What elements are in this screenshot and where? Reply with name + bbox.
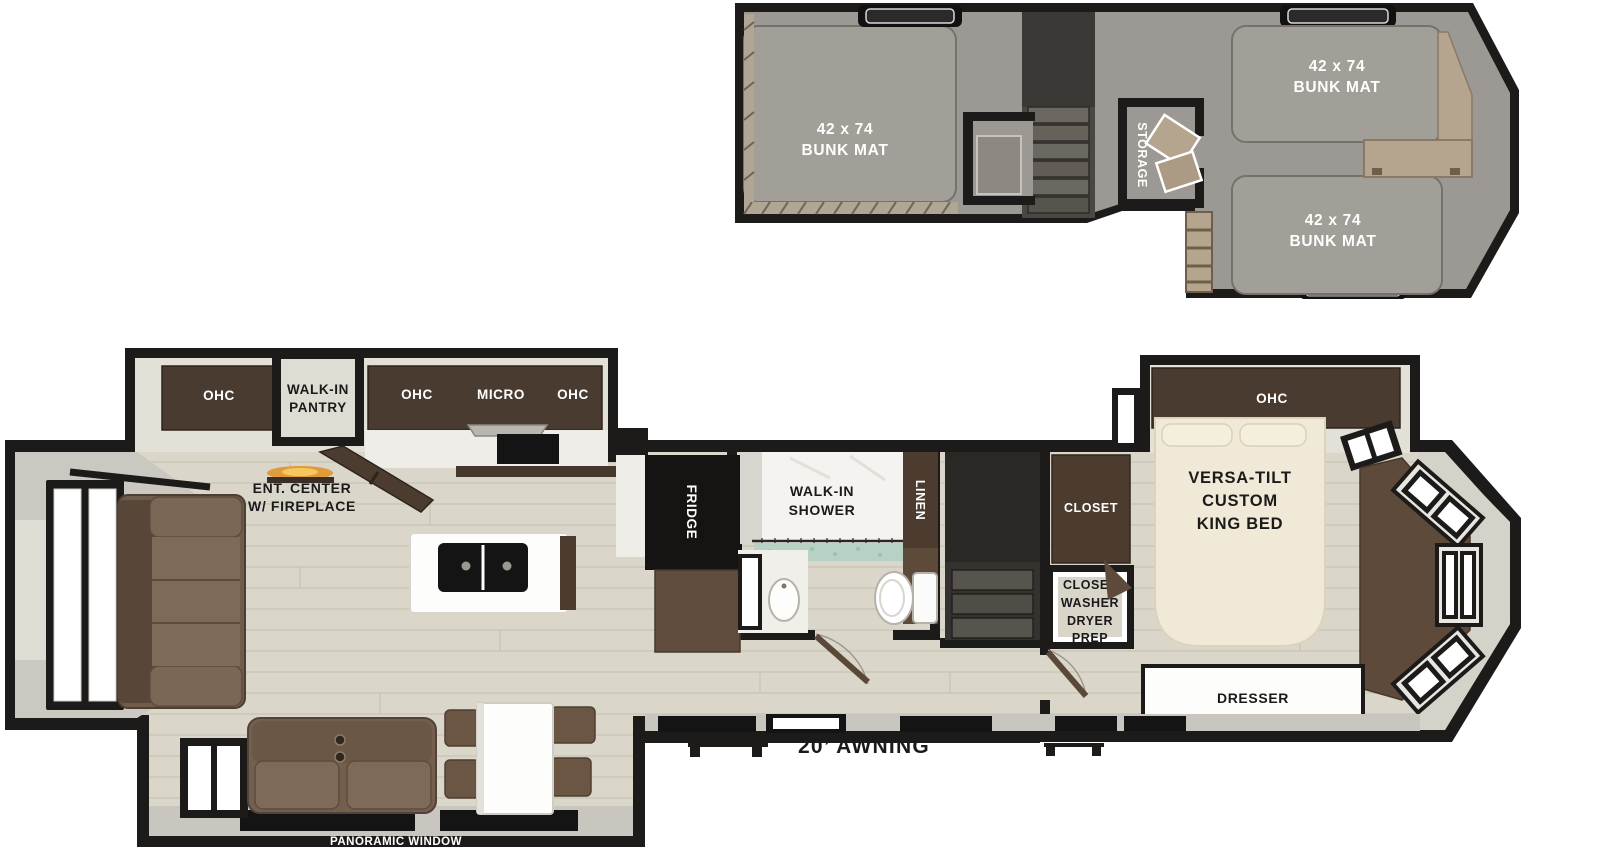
- roof-skylight-left-icon: [858, 5, 962, 27]
- roof-skylight-right-icon: [1280, 5, 1396, 27]
- pantry-label-line1: WALK-IN: [287, 382, 349, 397]
- pillow-icon: [1240, 424, 1306, 446]
- walk-in-pantry: WALK-IN PANTRY: [272, 350, 364, 446]
- bottom-window-icon: [658, 716, 756, 732]
- kitchen-micro-label: MICRO: [477, 387, 525, 402]
- king-bed: VERSA-TILT CUSTOM KING BED: [1155, 418, 1325, 646]
- fridge-label: FRIDGE: [684, 485, 699, 540]
- wd-label-line3: DRYER: [1067, 614, 1113, 628]
- panoramic-window-label: PANORAMIC WINDOW: [330, 836, 462, 848]
- bed-slide-left-window-icon: [1112, 388, 1140, 450]
- bathroom-vanity: [738, 550, 808, 633]
- loft-left-edge-hatch: [744, 14, 754, 202]
- loft-bunk-ladder-icon: [1186, 212, 1212, 292]
- bedroom-bottom-window-icon: [1055, 716, 1117, 731]
- dinette-table: [477, 703, 553, 814]
- storage-label: STORAGE: [1135, 122, 1149, 188]
- bottom-right-bunk-name-label: BUNK MAT: [1289, 233, 1376, 250]
- loft-floorplan: STORAGE 42 x 74 BUNK MAT 42 x 74 BUNK MA…: [735, 3, 1519, 299]
- loft-half-wall: [963, 112, 1035, 205]
- counter-right: [616, 455, 646, 557]
- rear-window-icon: [46, 480, 124, 710]
- dinette-chair: [445, 760, 479, 798]
- cooktop-icon: [497, 434, 559, 464]
- left-bunk-name-label: BUNK MAT: [801, 142, 888, 159]
- dinette-chair: [445, 710, 479, 746]
- loft-nightstand: [1364, 140, 1472, 177]
- kitchen-ohc-right-label: OHC: [557, 387, 589, 402]
- closet-label: CLOSET: [1064, 501, 1118, 515]
- cabinet-below-fridge: [655, 570, 740, 652]
- entry-steps-icon: [688, 743, 768, 757]
- toilet-icon: [875, 572, 937, 624]
- ent-center-label-line2: W/ FIREPLACE: [248, 498, 356, 514]
- bed-label-line2: CUSTOM: [1202, 492, 1278, 510]
- bedroom-ohc-label: OHC: [1256, 391, 1288, 406]
- floorplan-canvas: STORAGE 42 x 74 BUNK MAT 42 x 74 BUNK MA…: [0, 0, 1600, 849]
- bed-label-line1: VERSA-TILT: [1188, 469, 1291, 487]
- dresser-label: DRESSER: [1217, 690, 1289, 706]
- kitchen-island: [410, 533, 576, 613]
- sofa: [118, 495, 245, 708]
- top-right-bunk-name-label: BUNK MAT: [1293, 79, 1380, 96]
- rear-ohc-label: OHC: [203, 388, 235, 403]
- bottom-window-icon: [900, 716, 992, 732]
- linen-label: LINEN: [913, 480, 927, 520]
- pantry-label-line2: PANTRY: [289, 400, 347, 415]
- shower-label-line2: SHOWER: [789, 502, 856, 518]
- bedroom-closet: CLOSET: [1052, 455, 1130, 563]
- kitchen-ohc-left-label: OHC: [401, 387, 433, 402]
- pillow-icon: [1162, 424, 1232, 446]
- main-floorplan: OHC WALK-IN PANTRY OHC MICRO OHC EN: [5, 348, 1523, 848]
- wd-label-line4: PREP: [1072, 631, 1108, 645]
- fridge: FRIDGE: [645, 455, 742, 652]
- awning-label: 20’ AWNING: [798, 735, 930, 758]
- bedroom-bottom-window-icon: [1124, 716, 1186, 731]
- dinette-chair: [551, 758, 591, 796]
- dinette-chair: [551, 707, 595, 743]
- cupholder-icon: [335, 752, 345, 762]
- main-entry-door: [766, 714, 846, 733]
- top-right-bunk-size-label: 42 x 74: [1309, 58, 1366, 75]
- main-stairwell: [945, 452, 1040, 640]
- rv-floorplan-diagram: STORAGE 42 x 74 BUNK MAT 42 x 74 BUNK MA…: [0, 0, 1600, 849]
- cap-window-middle-icon: [1437, 545, 1481, 625]
- cupholder-icon: [335, 735, 345, 745]
- bedroom-entry-steps-icon: [1044, 743, 1104, 756]
- theatre-seating: [248, 718, 436, 813]
- slide-side-window-icon: [180, 738, 248, 818]
- bed-label-line3: KING BED: [1197, 515, 1284, 533]
- shower-label-line1: WALK-IN: [790, 483, 854, 499]
- left-bunk-size-label: 42 x 74: [817, 121, 874, 138]
- ent-center-label-line1: ENT. CENTER: [253, 480, 352, 496]
- bottom-right-bunk-size-label: 42 x 74: [1305, 212, 1362, 229]
- loft-bunk-rail-hatch: [744, 202, 958, 214]
- loft-left-bunk-mat: [744, 26, 956, 202]
